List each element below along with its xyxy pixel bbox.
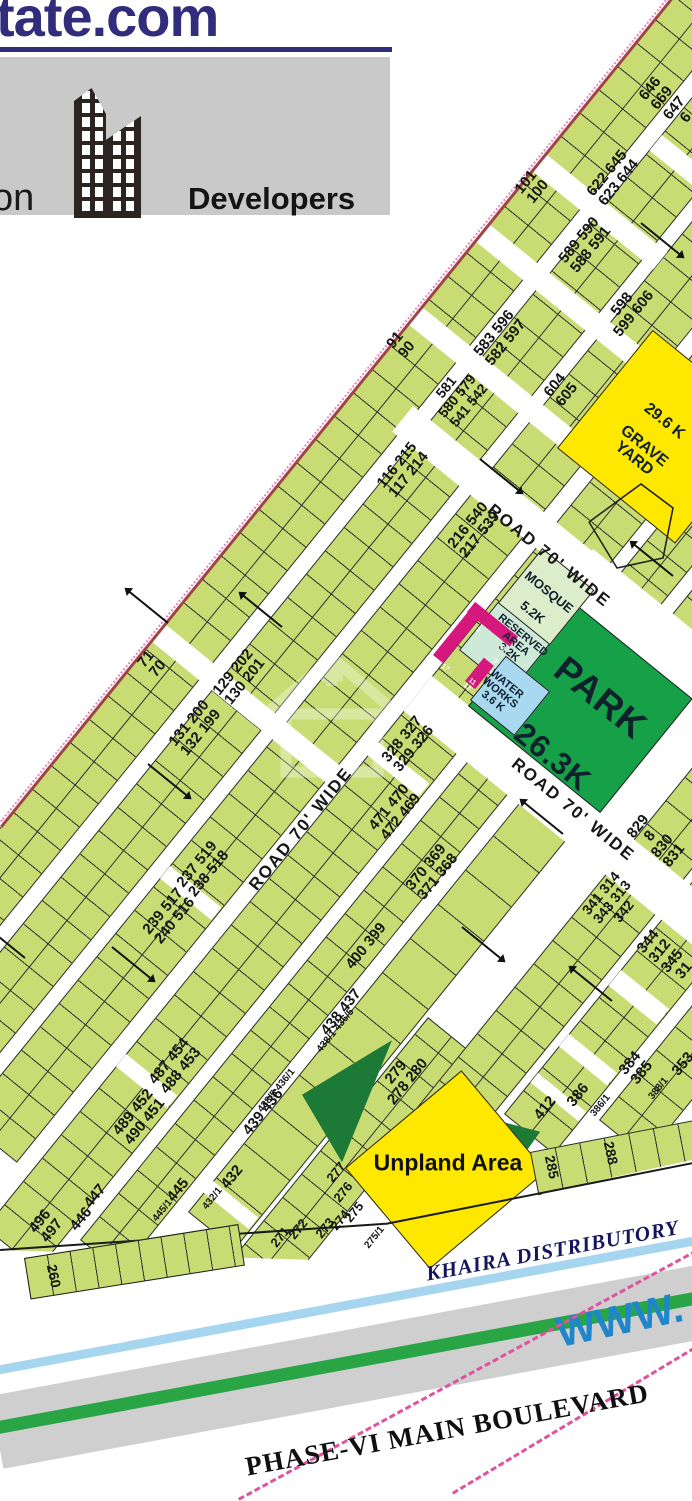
plot-map-page: { "header": { "site_fragment": "tate.com… [0, 0, 692, 1500]
buildings-logo-icon [74, 72, 144, 215]
developers-label: Developers [188, 181, 355, 217]
header-divider [0, 47, 392, 52]
site-title: tate.com [0, 0, 218, 49]
developer-banner: on Developers [0, 57, 390, 215]
site-header: tate.com on Developers [0, 0, 692, 1500]
developer-name-fragment: on [0, 177, 34, 220]
